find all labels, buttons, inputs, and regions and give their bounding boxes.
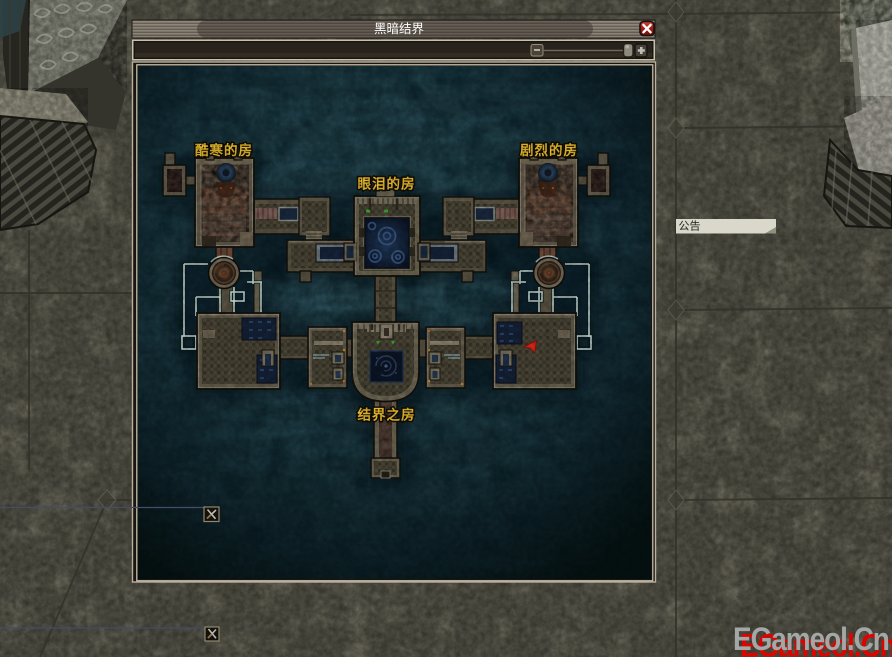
svg-text:黑暗结界: 黑暗结界 [374, 21, 425, 36]
svg-text:公告: 公告 [679, 220, 701, 233]
svg-text:EGameol.Cn: EGameol.Cn [733, 622, 889, 657]
